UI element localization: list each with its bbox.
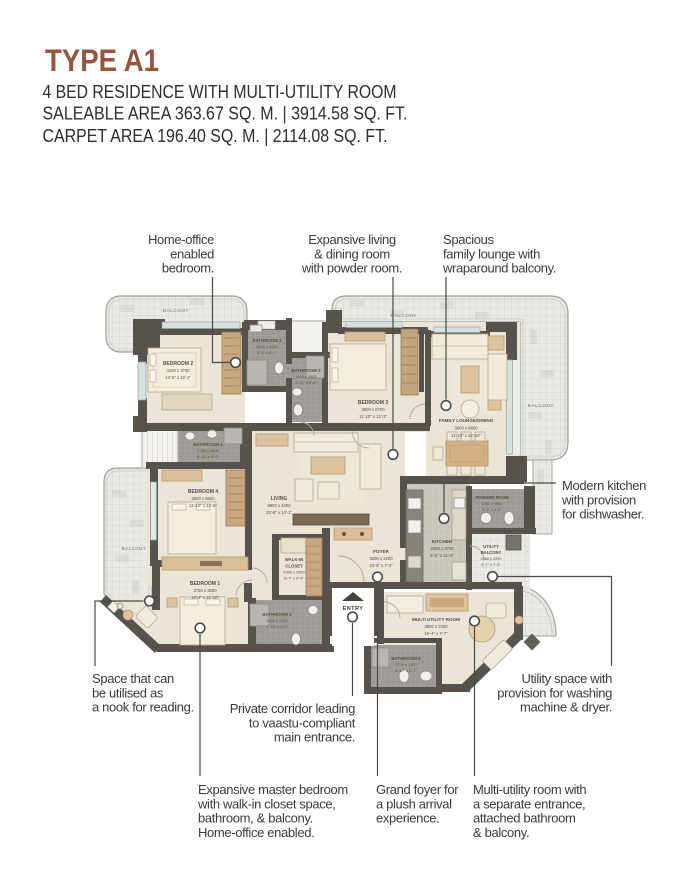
svg-text:12'-4" x 11'-10": 12'-4" x 11'-10"	[191, 595, 219, 600]
svg-text:6'-7" x 7'-3": 6'-7" x 7'-3"	[481, 563, 501, 567]
svg-text:provision for washing: provision for washing	[497, 685, 612, 700]
svg-text:8'-10" x 5'-5": 8'-10" x 5'-5"	[197, 454, 219, 459]
svg-text:4 BED RESIDENCE WITH MULTI-UTI: 4 BED RESIDENCE WITH MULTI-UTILITY ROOM	[43, 82, 397, 102]
svg-text:BALCONY: BALCONY	[528, 403, 554, 408]
svg-text:Private corridor leading: Private corridor leading	[230, 701, 355, 716]
svg-text:9'-10" x 5'-9": 9'-10" x 5'-9"	[266, 624, 288, 629]
svg-text:Home-office enabled.: Home-office enabled.	[198, 825, 314, 840]
svg-text:to vaastu-compliant: to vaastu-compliant	[249, 715, 356, 730]
svg-text:3600 x 2300: 3600 x 2300	[424, 624, 448, 629]
svg-text:& dining room: & dining room	[314, 246, 390, 261]
svg-text:3000 x 1750: 3000 x 1750	[266, 618, 288, 623]
svg-text:BATHROOM 3: BATHROOM 3	[291, 368, 321, 373]
svg-text:BEDROOM 3: BEDROOM 3	[358, 400, 389, 406]
svg-text:experience.: experience.	[376, 811, 439, 826]
svg-text:WALK-IN: WALK-IN	[285, 557, 303, 562]
svg-text:Home-office: Home-office	[148, 232, 214, 247]
svg-text:main entrance.: main entrance.	[274, 730, 355, 745]
svg-text:UTILITY: UTILITY	[483, 544, 499, 549]
svg-text:BATHROOM 4: BATHROOM 4	[193, 442, 223, 447]
svg-text:with provision: with provision	[561, 492, 636, 507]
svg-text:bedroom.: bedroom.	[162, 261, 214, 276]
svg-text:11'-10" x 12'-6": 11'-10" x 12'-6"	[189, 503, 217, 508]
svg-text:with powder room.: with powder room.	[301, 261, 402, 276]
svg-text:CARPET AREA 196.40 SQ. M. | 21: CARPET AREA 196.40 SQ. M. | 2114.08 SQ. …	[43, 126, 388, 146]
svg-text:Grand foyer for: Grand foyer for	[376, 782, 459, 797]
svg-text:CLOSET: CLOSET	[285, 564, 303, 569]
svg-text:2000 x 2850: 2000 x 2850	[283, 570, 305, 575]
svg-text:TYPE A1: TYPE A1	[45, 42, 159, 78]
svg-text:8'-10" x 4'-7": 8'-10" x 4'-7"	[395, 668, 417, 673]
svg-text:machine & dryer.: machine & dryer.	[520, 700, 612, 715]
svg-text:bathroom, & balcony.: bathroom, & balcony.	[198, 811, 313, 826]
svg-text:2700 x 1400: 2700 x 1400	[395, 662, 417, 667]
svg-text:FAMILY LOUNGE/DINING: FAMILY LOUNGE/DINING	[439, 418, 494, 423]
svg-text:10'-6" x 7'-3": 10'-6" x 7'-3"	[369, 563, 393, 568]
svg-text:Expansive master bedroom: Expansive master bedroom	[198, 782, 348, 797]
svg-text:1800 x 2800: 1800 x 2800	[295, 374, 317, 379]
svg-text:Multi-utility room with: Multi-utility room with	[473, 782, 586, 797]
svg-text:6800 x 4300: 6800 x 4300	[267, 503, 291, 508]
svg-text:5'-2" x 4'-5": 5'-2" x 4'-5"	[482, 508, 502, 512]
svg-text:MULTI UTILITY ROOM: MULTI UTILITY ROOM	[412, 617, 460, 622]
svg-text:Utility space with: Utility space with	[521, 671, 612, 686]
svg-text:3600 x 2000: 3600 x 2000	[256, 344, 278, 349]
svg-text:BEDROOM 1: BEDROOM 1	[190, 581, 221, 587]
svg-text:5'-11" x 9'-2": 5'-11" x 9'-2"	[295, 380, 317, 385]
svg-text:2600 x 3750: 2600 x 3750	[430, 546, 454, 551]
svg-text:2081 x 1500: 2081 x 1500	[482, 502, 503, 506]
svg-text:3600 x 6850: 3600 x 6850	[454, 426, 478, 431]
svg-text:BALCONY: BALCONY	[481, 550, 502, 555]
svg-text:3600 x 5800: 3600 x 5800	[191, 496, 215, 501]
svg-text:Space that can: Space that can	[92, 671, 174, 686]
svg-text:2760 x 1800: 2760 x 1800	[197, 448, 219, 453]
svg-text:a separate entrance,: a separate entrance,	[473, 796, 585, 811]
svg-text:4100 x 3700: 4100 x 3700	[166, 368, 190, 373]
svg-text:be utilised as: be utilised as	[92, 685, 164, 700]
svg-text:BALCONY: BALCONY	[122, 546, 146, 551]
svg-text:attached bathroom: attached bathroom	[473, 811, 575, 826]
svg-text:BEDROOM 4: BEDROOM 4	[188, 489, 219, 495]
svg-text:BATHROOM 1: BATHROOM 1	[262, 612, 292, 617]
svg-text:& balcony.: & balcony.	[473, 825, 529, 840]
svg-text:BEDROOM 2: BEDROOM 2	[163, 361, 194, 367]
svg-text:6'-7" x 9'-4": 6'-7" x 9'-4"	[284, 576, 304, 581]
svg-text:a plush arrival: a plush arrival	[376, 796, 452, 811]
svg-text:BALCONY: BALCONY	[163, 308, 189, 313]
svg-text:3200 x 2200: 3200 x 2200	[369, 556, 393, 561]
svg-text:2060 x 2200: 2060 x 2200	[481, 557, 502, 561]
svg-text:a nook for reading.: a nook for reading.	[92, 700, 194, 715]
svg-text:BATHROOM 5: BATHROOM 5	[391, 656, 421, 661]
svg-text:family lounge with: family lounge with	[443, 246, 540, 261]
svg-text:FOYER: FOYER	[373, 549, 390, 554]
svg-text:3750 x 3600: 3750 x 3600	[193, 588, 217, 593]
svg-text:Expansive living: Expansive living	[308, 232, 396, 247]
svg-text:wraparound balcony.: wraparound balcony.	[442, 261, 556, 276]
svg-text:Spacious: Spacious	[443, 232, 495, 247]
svg-text:25'-8" x 14'-1": 25'-8" x 14'-1"	[266, 510, 292, 515]
svg-text:13'-5" x 12'-2": 13'-5" x 12'-2"	[165, 375, 191, 380]
svg-text:SALEABLE AREA 363.67 SQ. M. |: SALEABLE AREA 363.67 SQ. M. | 3914.58 SQ…	[43, 104, 408, 124]
svg-text:Modern kitchen: Modern kitchen	[562, 478, 646, 493]
svg-text:with walk-in closet space,: with walk-in closet space,	[197, 796, 336, 811]
svg-text:enabled: enabled	[170, 246, 214, 261]
svg-text:8'-6" x 12'-4": 8'-6" x 12'-4"	[430, 553, 454, 558]
svg-text:3600 x 5700: 3600 x 5700	[361, 407, 385, 412]
svg-text:for dishwasher.: for dishwasher.	[562, 507, 644, 522]
svg-text:5'-9" x 6'-7": 5'-9" x 6'-7"	[257, 350, 277, 355]
svg-text:ENTRY: ENTRY	[343, 606, 364, 612]
svg-text:11'-10" x 22'-10": 11'-10" x 22'-10"	[451, 433, 482, 438]
svg-text:KITCHEN: KITCHEN	[432, 539, 453, 544]
svg-text:POWDER ROOM: POWDER ROOM	[475, 495, 509, 500]
svg-text:BATHROOM 2: BATHROOM 2	[252, 338, 282, 343]
svg-text:LIVING: LIVING	[271, 496, 288, 502]
svg-text:11'-10" x 12'-3": 11'-10" x 12'-3"	[359, 414, 387, 419]
svg-text:15'-4" x 7'-7": 15'-4" x 7'-7"	[424, 631, 448, 636]
